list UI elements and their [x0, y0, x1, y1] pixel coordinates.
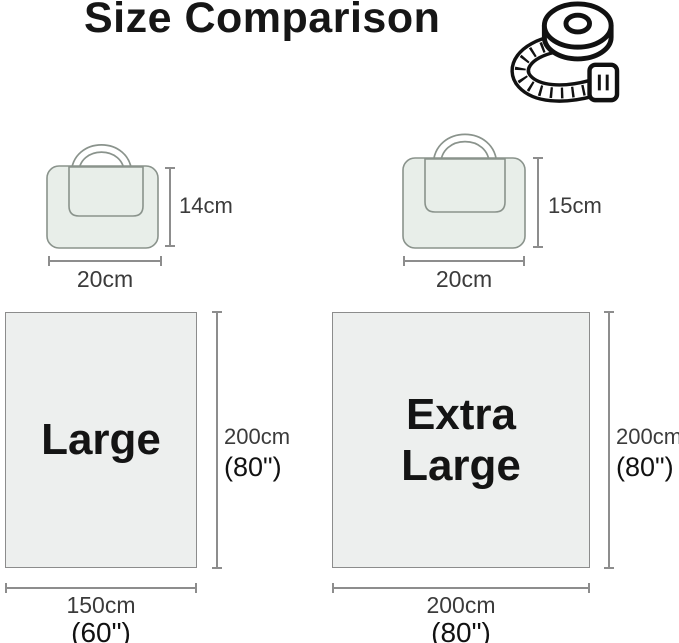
blanket-large-height-in: (80") [224, 452, 290, 483]
dim-line-large-height [216, 312, 218, 568]
folded-bag-large-illustration [395, 125, 545, 255]
blanket-large-width-in: (60") [5, 617, 197, 643]
blanket-extra-large-width-in: (80") [332, 617, 590, 643]
dim-line-bag-large-width [403, 260, 525, 262]
blanket-large-height-labels: 200cm (80") [224, 424, 290, 483]
dim-line-large-width [5, 587, 197, 589]
page-title: Size Comparison [84, 0, 440, 43]
blanket-extra-large-height-in: (80") [616, 452, 679, 483]
folded-bag-small-illustration [40, 130, 175, 255]
dim-line-extra-large-height [608, 312, 610, 568]
dim-line-bag-large-height [537, 158, 539, 247]
size-comparison-diagram: Size Comparison 14cm 20cm 15cm 20cm Larg… [0, 0, 679, 643]
blanket-large-height-cm: 200cm [224, 424, 290, 450]
blanket-extra-large-height-labels: 200cm (80") [616, 424, 679, 483]
blanket-extra-large-name: Extra Large [361, 389, 561, 491]
measuring-tape-icon [503, 0, 625, 108]
dim-line-bag-small-height [169, 168, 171, 246]
blanket-extra-large-width-labels: 200cm (80") [332, 592, 590, 643]
bag-large-width-label: 20cm [403, 266, 525, 293]
blanket-large-width-labels: 150cm (60") [5, 592, 197, 643]
bag-large-height-label: 15cm [548, 193, 602, 219]
blanket-large-name: Large [41, 414, 161, 465]
blanket-extra-large: Extra Large [332, 312, 590, 568]
bag-small-height-label: 14cm [179, 193, 233, 219]
blanket-large: Large [5, 312, 197, 568]
dim-line-extra-large-width [332, 587, 590, 589]
blanket-large-width-cm: 150cm [5, 592, 197, 619]
bag-small-width-label: 20cm [48, 266, 162, 293]
dim-line-bag-small-width [48, 260, 162, 262]
blanket-extra-large-height-cm: 200cm [616, 424, 679, 450]
blanket-extra-large-width-cm: 200cm [332, 592, 590, 619]
